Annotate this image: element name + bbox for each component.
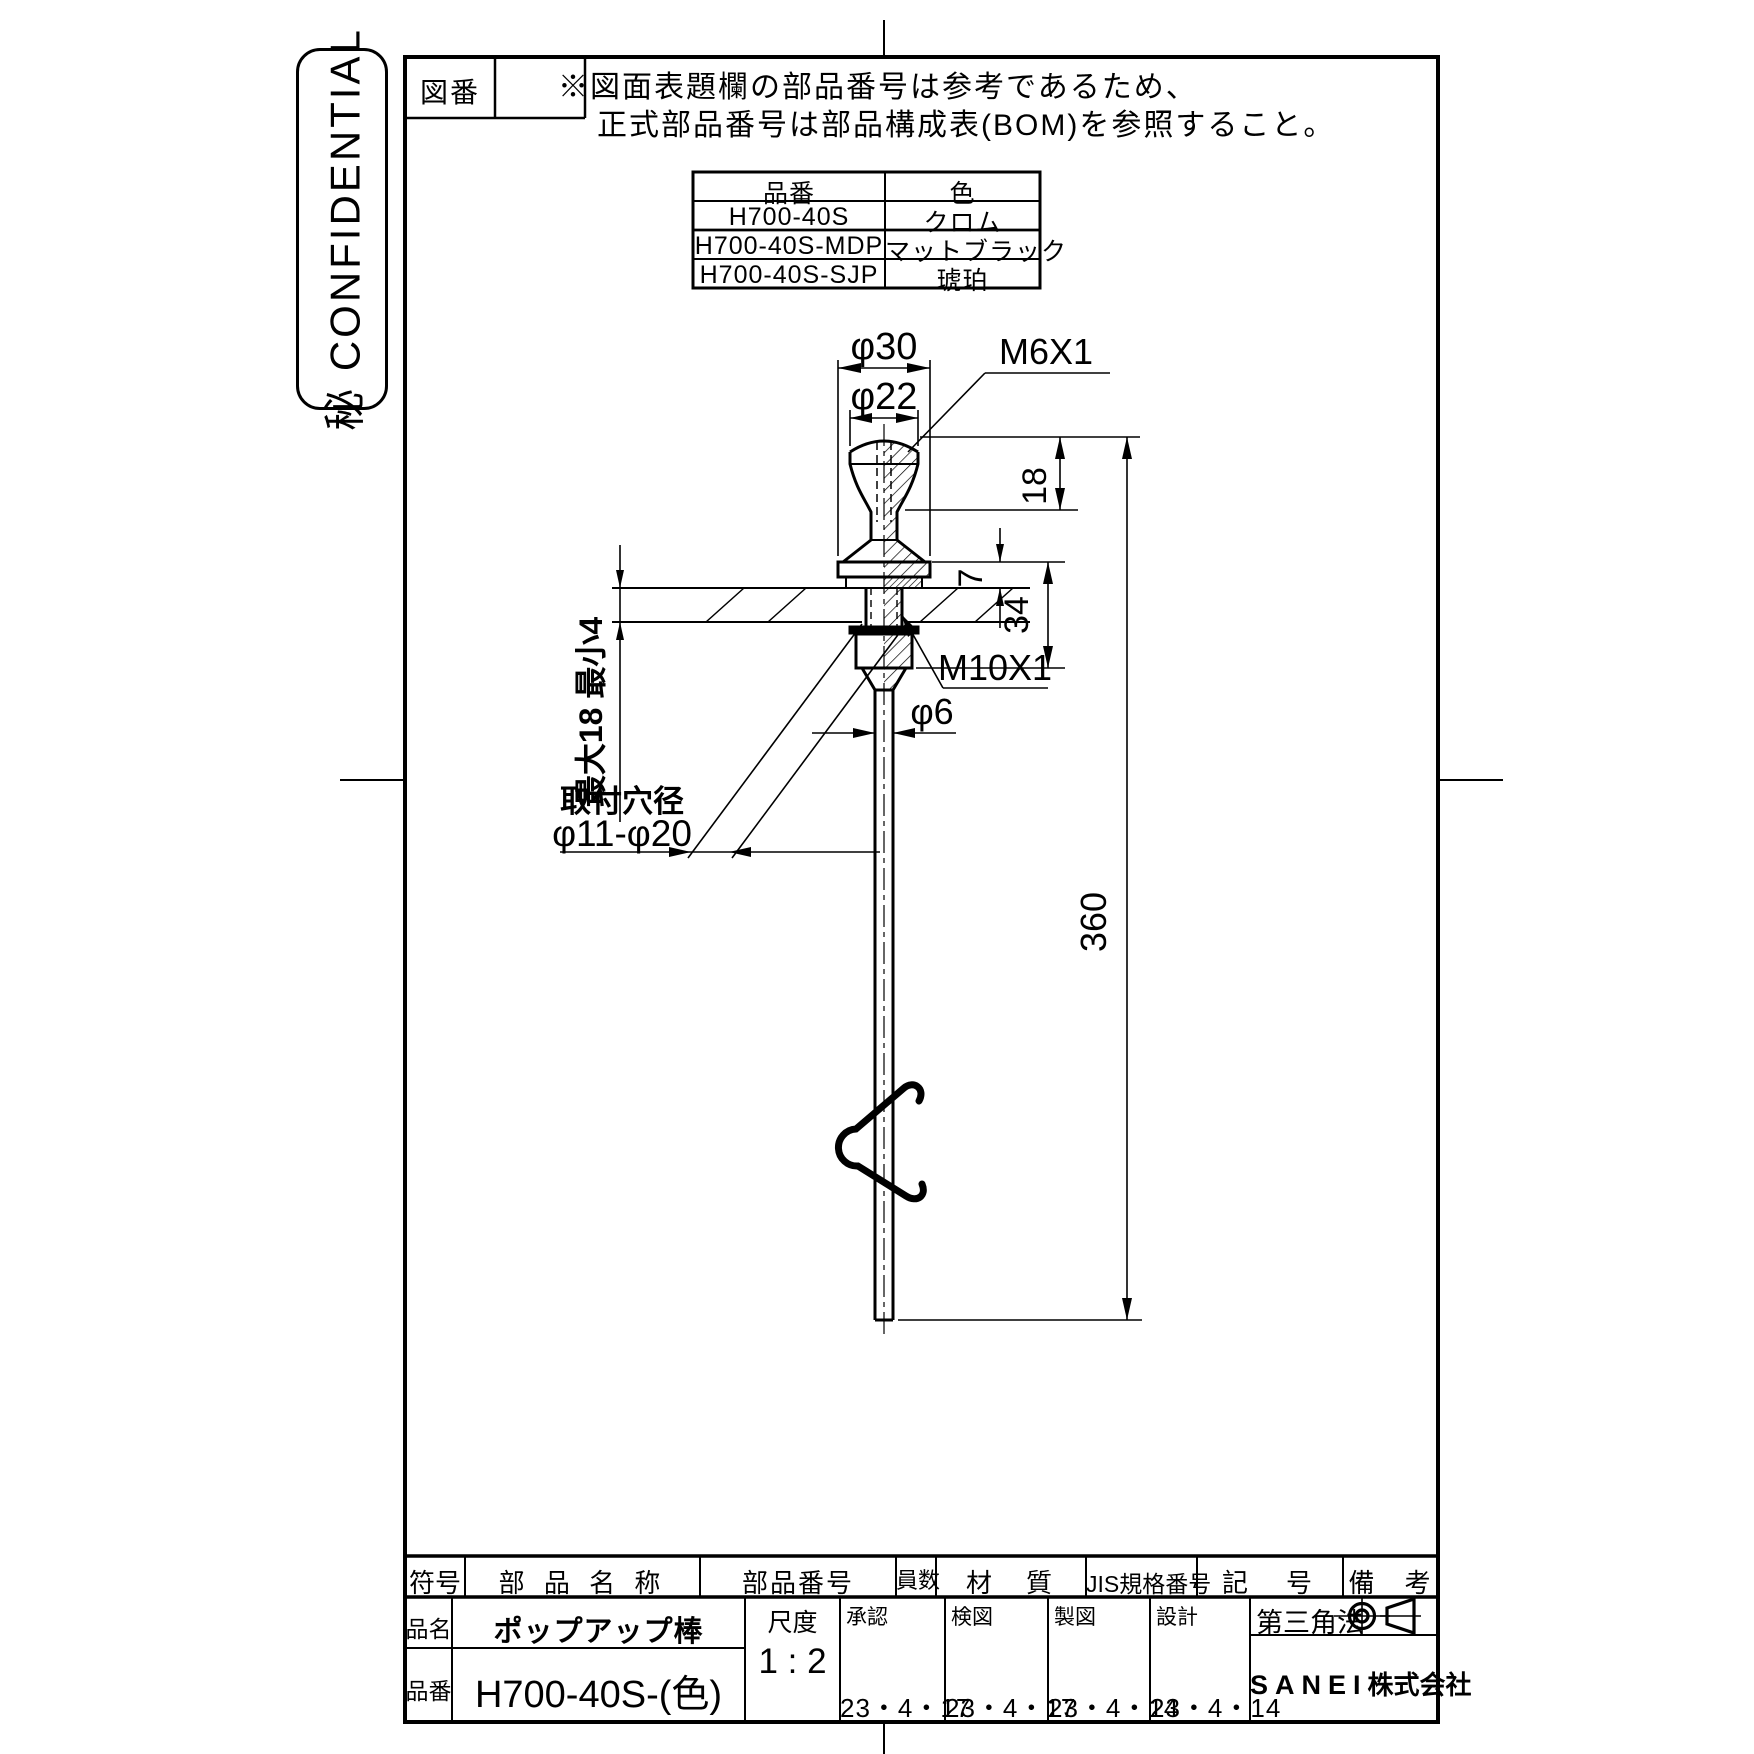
confidential-stamp-label: 秘 CONFIDENTIAL (312, 27, 373, 431)
dim-m6x1: M6X1 (999, 331, 1093, 372)
tb-projection-label: 第三角法 (1256, 1601, 1364, 1640)
tb-col-qty: 員数 (896, 1563, 936, 1595)
dimension-labels: φ30 φ22 M6X1 18 7 34 M10X1 φ6 360 最大18 最… (552, 326, 1114, 952)
dim-360: 360 (1073, 892, 1114, 952)
dim-dia30: φ30 (851, 326, 918, 368)
dim-panel-range: 最大18 最小4 (573, 617, 609, 807)
tb-scale-label: 尺度 (745, 1603, 840, 1639)
tb-design-date: 23・4・14 (1150, 1688, 1250, 1725)
dim-dia22: φ22 (851, 376, 918, 418)
tb-col-part-name: 部 品 名 称 (465, 1563, 700, 1600)
tb-col-material: 材 質 (936, 1563, 1086, 1600)
color-table-cell: H700-40S-SJP (693, 261, 885, 290)
dim-dia6: φ6 (910, 691, 953, 732)
tb-col-jis: JIS規格番号 (1086, 1565, 1197, 1599)
tb-company-jp: 株式会社 (1368, 1670, 1472, 1700)
tb-approval-label: 承認 (846, 1601, 888, 1631)
popup-rod-part (612, 424, 1030, 1336)
tb-product-no-label: 品番 (405, 1672, 452, 1706)
dim-m10x1: M10X1 (938, 647, 1052, 688)
tb-col-symbol: 記 号 (1197, 1563, 1343, 1600)
color-table-cell: H700-40S (693, 203, 885, 232)
dim-7: 7 (952, 569, 990, 588)
note-line-2: 正式部品番号は部品構成表(BOM)を参照すること。 (597, 100, 1335, 144)
color-table-cell: 琥珀 (885, 261, 1040, 297)
dim-18: 18 (1016, 467, 1054, 505)
tb-scale-value: 1 : 2 (745, 1642, 840, 1682)
tb-company-en: SANEI (1250, 1670, 1368, 1700)
tb-company: SANEI株式会社 (1250, 1665, 1438, 1702)
tb-design-label: 設計 (1156, 1601, 1198, 1631)
tb-product-name: ポップアップ棒 (452, 1608, 745, 1650)
tb-product-name-label: 品名 (405, 1610, 452, 1644)
tb-approval-date: 23・4・17 (840, 1688, 945, 1725)
tb-product-no: H700-40S-(色) (452, 1663, 745, 1718)
drawing-number-label: 図番 (405, 71, 495, 111)
tb-col-part-no: 部品番号 (700, 1563, 896, 1600)
dim-34: 34 (998, 596, 1036, 634)
tb-draft-date: 23・4・14 (1048, 1688, 1150, 1725)
tb-col-sign: 符号 (405, 1563, 465, 1600)
dim-hole-range: φ11-φ20 (552, 813, 692, 854)
tb-check-label: 検図 (951, 1601, 993, 1631)
drawing-page: φ30 φ22 M6X1 18 7 34 M10X1 φ6 360 最大18 最… (0, 0, 1754, 1754)
tb-draft-label: 製図 (1054, 1601, 1096, 1631)
color-table-cell: H700-40S-MDP (693, 232, 885, 261)
tb-col-remarks: 備 考 (1343, 1563, 1438, 1600)
tb-check-date: 23・4・17 (945, 1688, 1048, 1725)
